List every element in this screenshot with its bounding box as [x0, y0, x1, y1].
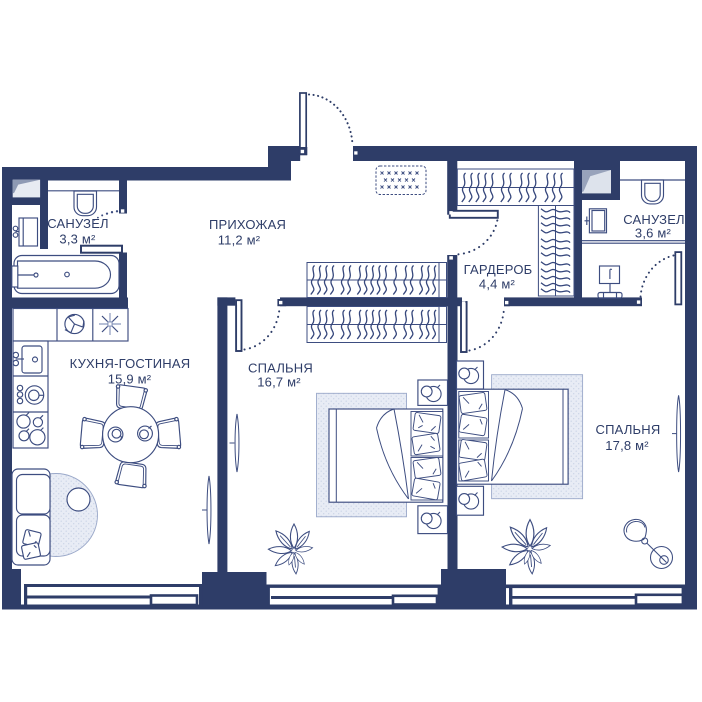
svg-text:3,3 м²: 3,3 м² [59, 232, 96, 247]
svg-text:15,9 м²: 15,9 м² [108, 372, 152, 387]
svg-text:4,4 м²: 4,4 м² [479, 277, 516, 292]
svg-text:ГАРДЕРОБ: ГАРДЕРОБ [464, 262, 533, 277]
svg-text:САНУЗЕЛ: САНУЗЕЛ [47, 216, 109, 231]
svg-text:КУХНЯ-ГОСТИНАЯ: КУХНЯ-ГОСТИНАЯ [70, 356, 191, 371]
svg-text:17,8 м²: 17,8 м² [605, 438, 649, 453]
svg-text:11,2 м²: 11,2 м² [218, 233, 261, 248]
svg-text:16,7 м²: 16,7 м² [257, 375, 301, 390]
svg-text:ПРИХОЖАЯ: ПРИХОЖАЯ [209, 217, 286, 232]
svg-text:СПАЛЬНЯ: СПАЛЬНЯ [248, 361, 313, 376]
svg-text:3,6 м²: 3,6 м² [635, 226, 672, 241]
svg-text:СПАЛЬНЯ: СПАЛЬНЯ [596, 422, 661, 437]
